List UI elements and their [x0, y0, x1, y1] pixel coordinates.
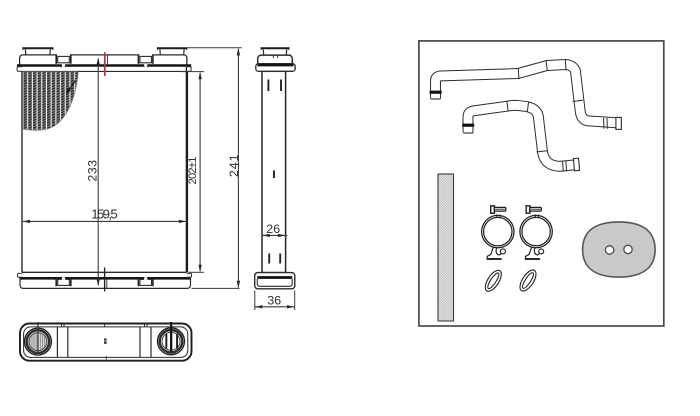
svg-text:36: 36	[267, 294, 281, 308]
svg-text:26: 26	[266, 222, 280, 236]
svg-text:159,5: 159,5	[91, 206, 118, 221]
svg-text:233: 233	[86, 160, 100, 182]
svg-text:241: 241	[227, 154, 241, 177]
svg-text:202±1: 202±1	[187, 157, 199, 185]
